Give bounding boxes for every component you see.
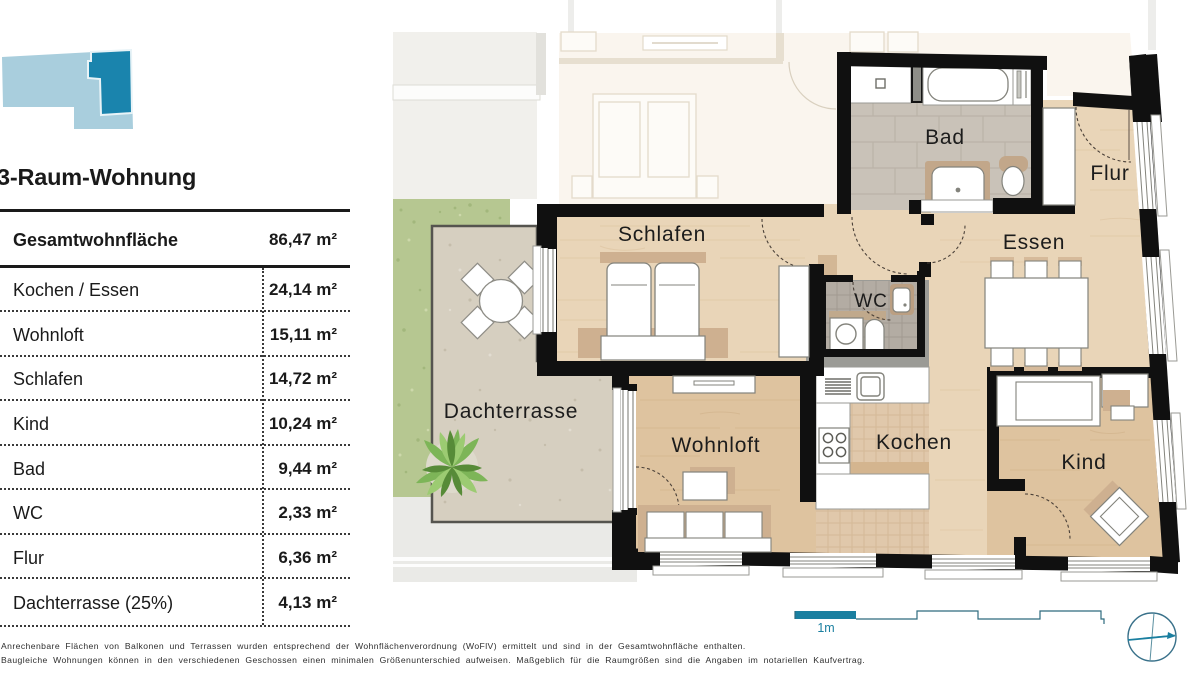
svg-text:1m: 1m [817,621,834,635]
svg-text:Kind: Kind [1061,451,1106,474]
svg-text:Wohnloft: Wohnloft [672,434,761,457]
svg-text:Essen: Essen [1003,231,1065,254]
svg-text:Kochen: Kochen [876,431,952,454]
svg-text:Dachterrasse: Dachterrasse [444,400,578,423]
svg-text:Schlafen: Schlafen [618,223,706,246]
svg-text:Bad: Bad [925,126,965,149]
svg-text:WC: WC [854,291,887,312]
svg-text:Flur: Flur [1090,162,1129,185]
